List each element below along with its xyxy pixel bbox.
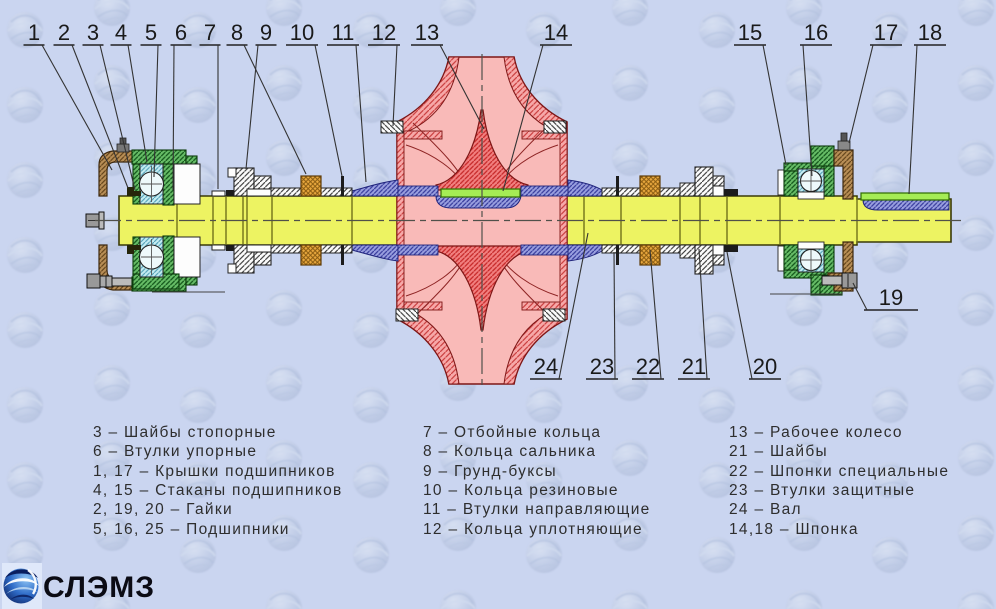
svg-text:10 – Кольца резиновые: 10 – Кольца резиновые [423,482,619,499]
svg-text:5, 16, 25 – Подшипники: 5, 16, 25 – Подшипники [93,521,290,538]
svg-text:13: 13 [415,20,439,45]
svg-text:21 – Шайбы: 21 – Шайбы [729,443,828,460]
svg-text:22: 22 [636,354,660,379]
svg-text:4: 4 [115,20,127,45]
svg-text:13 – Рабочее колесо: 13 – Рабочее колесо [729,424,903,441]
svg-text:20: 20 [753,354,777,379]
svg-text:3 – Шайбы стопорные: 3 – Шайбы стопорные [93,424,277,441]
svg-text:23: 23 [590,354,614,379]
svg-text:8 – Кольца сальника: 8 – Кольца сальника [423,443,596,460]
svg-text:2, 19, 20 – Гайки: 2, 19, 20 – Гайки [93,501,233,518]
svg-text:6 – Втулки упорные: 6 – Втулки упорные [93,443,257,460]
svg-text:9 – Грунд-буксы: 9 – Грунд-буксы [423,463,557,480]
svg-text:7: 7 [204,20,216,45]
svg-text:24: 24 [534,354,558,379]
svg-text:21: 21 [682,354,706,379]
svg-text:1, 17 – Крышки подшипников: 1, 17 – Крышки подшипников [93,463,336,480]
svg-text:19: 19 [879,285,903,310]
svg-text:23 – Втулки защитные: 23 – Втулки защитные [729,482,915,499]
svg-text:9: 9 [260,20,272,45]
svg-text:2: 2 [58,20,70,45]
svg-text:5: 5 [145,20,157,45]
svg-text:8: 8 [231,20,243,45]
svg-text:12: 12 [372,20,396,45]
svg-text:16: 16 [804,20,828,45]
svg-text:18: 18 [918,20,942,45]
svg-text:12 – Кольца уплотняющие: 12 – Кольца уплотняющие [423,521,643,538]
svg-text:4, 15 – Стаканы подшипников: 4, 15 – Стаканы подшипников [93,482,343,499]
svg-text:17: 17 [874,20,898,45]
svg-text:3: 3 [87,20,99,45]
svg-text:10: 10 [290,20,314,45]
svg-text:6: 6 [175,20,187,45]
svg-text:11: 11 [332,20,355,45]
svg-text:22 – Шпонки специальные: 22 – Шпонки специальные [729,463,949,480]
svg-text:24 – Вал: 24 – Вал [729,501,802,518]
svg-text:1: 1 [28,20,40,45]
svg-text:11 – Втулки направляющие: 11 – Втулки направляющие [423,501,651,518]
svg-text:7 – Отбойные кольца: 7 – Отбойные кольца [423,424,601,441]
svg-text:15: 15 [738,20,762,45]
svg-text:СЛЭМЗ: СЛЭМЗ [43,571,155,604]
svg-text:14,18 – Шпонка: 14,18 – Шпонка [729,521,859,538]
svg-text:14: 14 [544,20,568,45]
